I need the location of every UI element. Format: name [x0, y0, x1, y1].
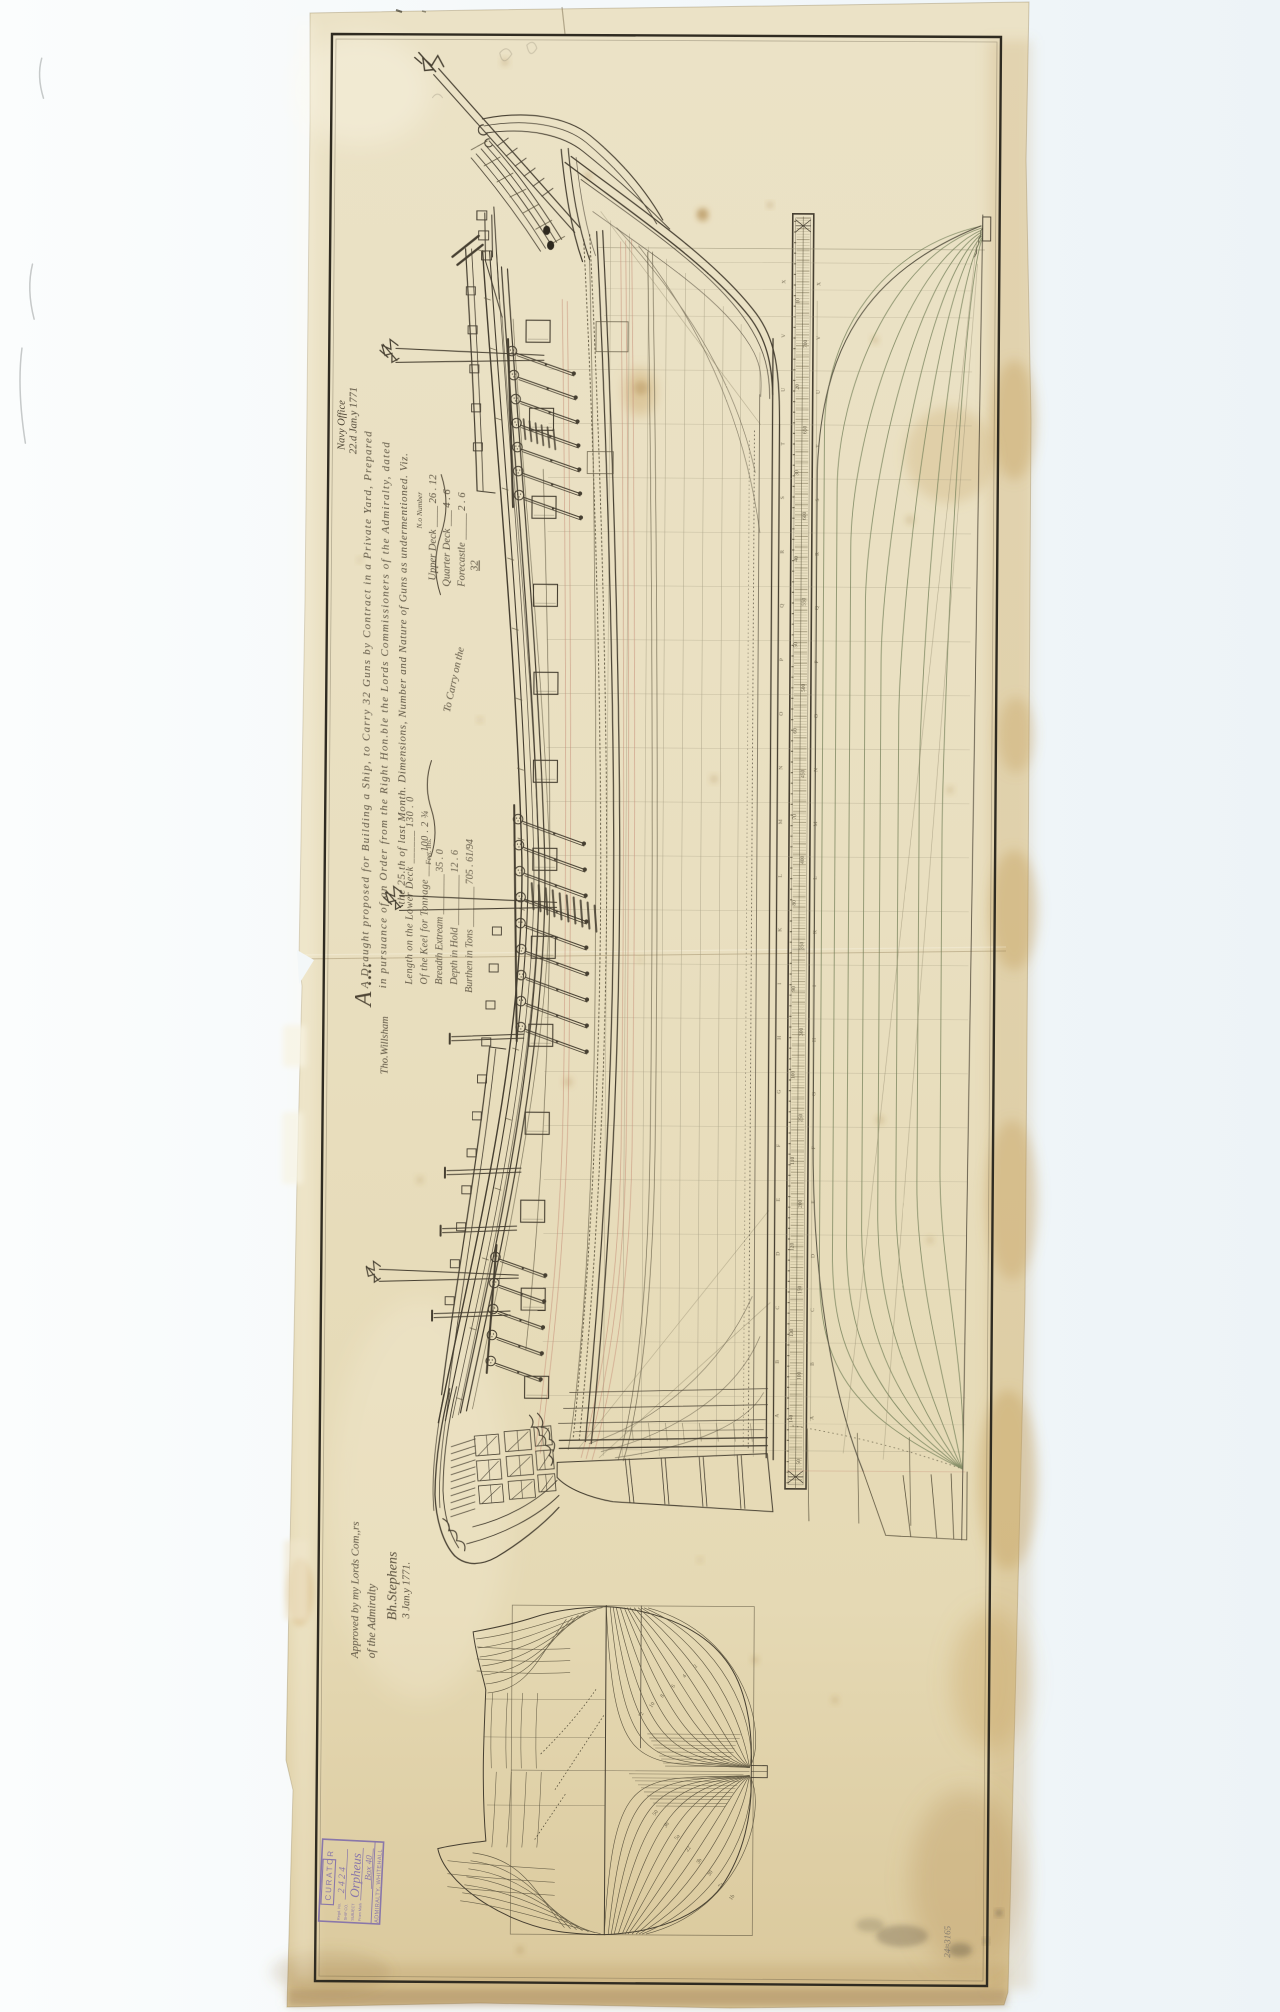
svg-text:110: 110	[790, 1157, 796, 1165]
svg-text:100: 100	[797, 1371, 803, 1380]
svg-text:H: H	[777, 1036, 783, 1040]
svg-text:U: U	[781, 388, 787, 392]
svg-text:R: R	[780, 550, 786, 554]
svg-text:O: O	[779, 712, 785, 716]
svg-text:500: 500	[801, 683, 807, 692]
svg-text:M: M	[778, 819, 784, 824]
svg-text:Burthen in Tons ________ 705 .: Burthen in Tons ________ 705 . ​61/94	[464, 839, 476, 993]
svg-text:Quarter Deck ___ 4 . 6: Quarter Deck ___ 4 . 6	[442, 489, 454, 587]
svg-text:C: C	[810, 1308, 816, 1312]
svg-text:30: 30	[794, 470, 800, 476]
svg-text:A: A	[809, 1416, 815, 1420]
svg-text:80: 80	[792, 900, 798, 906]
svg-text:20: 20	[795, 384, 801, 390]
svg-text:Approved by my Lords Com,,rs: Approved by my Lords Com,,rs	[349, 1521, 362, 1659]
svg-text:I: I	[812, 985, 818, 987]
svg-text:G: G	[811, 1092, 817, 1096]
svg-text:32: 32	[470, 560, 481, 572]
svg-text:A: A	[774, 1414, 780, 1418]
svg-text:Breadth Extream ________ 35 .: Breadth Extream ________ 35 . 0	[434, 849, 446, 984]
svg-text:X: X	[781, 280, 787, 284]
svg-text:of the Admiralty: of the Admiralty	[366, 1583, 378, 1658]
svg-text:Depth in Hold __________ 12 .: Depth in Hold __________ 12 . 6	[449, 850, 461, 986]
svg-text:Q: Q	[779, 604, 785, 608]
svg-text:70: 70	[792, 814, 798, 820]
svg-text:650: 650	[802, 425, 808, 434]
svg-text:3 Jan.y 1771.: 3 Jan.y 1771.	[401, 1562, 412, 1620]
svg-text:Tho.Willsham: Tho.Willsham	[380, 1016, 391, 1075]
svg-text:120: 120	[789, 1242, 795, 1251]
svg-text:B: B	[810, 1362, 816, 1366]
svg-text:Of the Keel for Tonnage ____ 1: Of the Keel for Tonnage ____ 100 . 2 ¾	[419, 810, 431, 984]
svg-text:90: 90	[791, 986, 797, 992]
svg-text:B: B	[775, 1360, 781, 1364]
svg-text:300: 300	[799, 1027, 805, 1036]
svg-text:140: 140	[788, 1414, 794, 1423]
svg-text:V: V	[816, 336, 822, 340]
svg-text:S: S	[780, 496, 786, 499]
svg-text:M: M	[813, 821, 819, 826]
svg-text:A ....: A ....	[351, 962, 377, 1008]
svg-text:130: 130	[789, 1328, 795, 1337]
svg-text:50: 50	[793, 642, 799, 648]
svg-text:Q: Q	[814, 606, 820, 610]
svg-text:F: F	[811, 1146, 817, 1149]
svg-text:N: N	[813, 768, 819, 772]
svg-text:150: 150	[797, 1285, 803, 1294]
svg-text:SHIP CO.: SHIP CO.	[344, 1904, 349, 1921]
svg-text:50: 50	[796, 1459, 802, 1465]
svg-text:700: 700	[803, 339, 809, 348]
svg-text:I: I	[777, 983, 783, 985]
svg-text:C: C	[775, 1306, 781, 1310]
svg-text:450: 450	[800, 769, 806, 778]
svg-text:10: 10	[795, 298, 801, 304]
svg-text:P: P	[779, 658, 785, 661]
svg-text:D: D	[810, 1254, 816, 1258]
svg-text:Bh.Stephens: Bh.Stephens	[385, 1551, 400, 1620]
svg-text:O: O	[814, 714, 820, 718]
svg-text:Forecastle _____ 2 . 6: Forecastle _____ 2 . 6	[457, 492, 469, 588]
svg-text:F: F	[776, 1144, 782, 1147]
svg-text:100: 100	[791, 1070, 797, 1079]
svg-text:40: 40	[794, 556, 800, 562]
svg-text:550: 550	[801, 597, 807, 606]
svg-text:G: G	[776, 1090, 782, 1094]
svg-text:24≈3165: 24≈3165	[942, 1925, 952, 1957]
svg-text:P: P	[814, 660, 820, 663]
svg-text:H: H	[812, 1038, 818, 1042]
svg-text:N.o Number: N.o Number	[415, 492, 424, 530]
svg-text:350: 350	[799, 941, 805, 950]
svg-text:D: D	[775, 1252, 781, 1256]
svg-text:22.d Jan.y 1771: 22.d Jan.y 1771	[348, 387, 359, 454]
svg-text:K: K	[777, 928, 783, 932]
svg-text:K: K	[812, 930, 818, 934]
svg-text:600: 600	[802, 511, 808, 520]
svg-text:Upper Deck ____ 26 . 12: Upper Deck ____ 26 . 12	[428, 474, 440, 581]
svg-text:N: N	[778, 766, 784, 770]
svg-text:V: V	[781, 334, 787, 338]
svg-text:250: 250	[798, 1113, 804, 1122]
svg-text:Regd. No.: Regd. No.	[337, 1903, 342, 1920]
svg-text:U: U	[816, 390, 822, 394]
svg-text:200: 200	[798, 1199, 804, 1208]
svg-text:S: S	[815, 498, 821, 501]
svg-text:Length on the Lower Deck _____: Length on the Lower Deck ______ 130 . 0	[404, 796, 416, 985]
svg-text:R: R	[815, 552, 821, 556]
svg-text:Navy Office: Navy Office	[336, 400, 347, 451]
svg-text:60: 60	[793, 728, 799, 734]
svg-text:X: X	[816, 282, 822, 286]
